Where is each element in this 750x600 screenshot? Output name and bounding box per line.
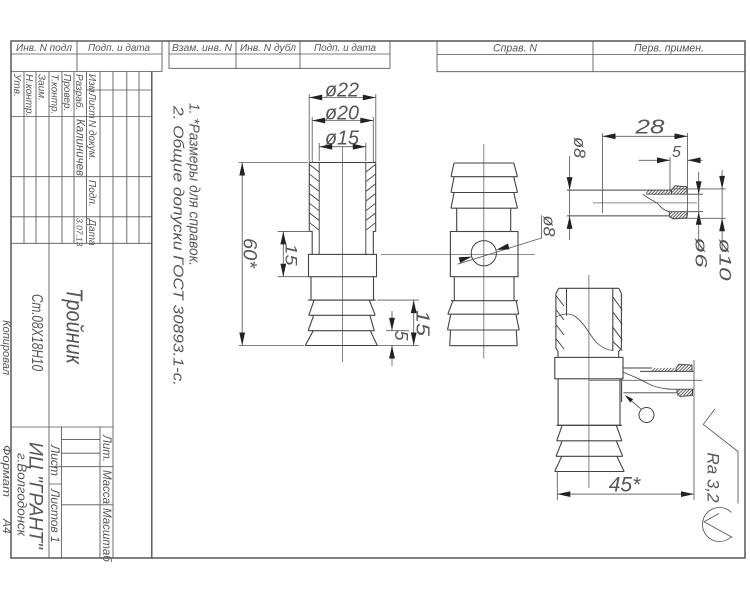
svg-text:2. Общие допуски ГОСТ 30893.1-: 2. Общие допуски ГОСТ 30893.1-с. <box>170 105 186 386</box>
svg-text:Заим.: Заим. <box>36 74 47 101</box>
svg-text:ø6: ø6 <box>692 238 711 269</box>
svg-text:Калиничев: Калиничев <box>74 119 86 176</box>
svg-text:Разраб.: Разраб. <box>73 74 85 110</box>
svg-text:Инв. N дубл: Инв. N дубл <box>240 42 296 54</box>
svg-text:3.07.13: 3.07.13 <box>75 218 85 247</box>
svg-text:Подп. и дата: Подп. и дата <box>88 42 150 54</box>
svg-text:г.Волгодонск: г.Волгодонск <box>15 453 30 537</box>
svg-text:5: 5 <box>391 331 411 342</box>
svg-text:Ст.08Х18Н10: Ст.08Х18Н10 <box>28 294 45 371</box>
svg-text:Утв.: Утв. <box>11 73 22 97</box>
svg-text:Формат: Формат <box>0 445 12 497</box>
svg-text:Лист: Лист <box>48 444 62 476</box>
svg-text:Лист: Лист <box>86 92 97 119</box>
svg-text:Подп. и дата: Подп. и дата <box>314 42 376 54</box>
svg-text:Подп.: Подп. <box>86 180 97 207</box>
svg-text:Т.контр.: Т.контр. <box>49 74 60 114</box>
svg-text:ø8: ø8 <box>540 216 559 238</box>
svg-text:Н.контр.: Н.контр. <box>23 74 34 116</box>
svg-text:ø8: ø8 <box>570 137 589 159</box>
svg-text:ø22: ø22 <box>325 80 359 102</box>
svg-text:ø15: ø15 <box>325 128 360 150</box>
svg-text:1. *Размеры для справок.: 1. *Размеры для справок. <box>186 103 202 266</box>
svg-text:Дата: Дата <box>86 218 97 246</box>
svg-text:А4: А4 <box>0 518 14 534</box>
svg-text:Тройник: Тройник <box>62 288 88 365</box>
svg-text:Масштаб: Масштаб <box>100 508 112 562</box>
svg-text:ø20: ø20 <box>325 103 359 125</box>
svg-text:Перв. примен.: Перв. примен. <box>634 43 704 55</box>
svg-text:Ra 3,2: Ra 3,2 <box>704 453 723 504</box>
svg-text:Лит.: Лит. <box>100 434 112 462</box>
svg-text:60*: 60* <box>239 238 260 269</box>
svg-text:15: 15 <box>282 244 301 267</box>
svg-text:28: 28 <box>634 117 664 139</box>
svg-text:Инв. N подл: Инв. N подл <box>16 42 72 54</box>
svg-text:Справ. N: Справ. N <box>493 43 537 55</box>
svg-text:5: 5 <box>672 144 681 161</box>
svg-text:Взам. инв. N: Взам. инв. N <box>172 42 232 54</box>
svg-text:Провер.: Провер. <box>61 74 72 111</box>
svg-text:N докум.: N докум. <box>86 120 97 160</box>
svg-text:Листов 1: Листов 1 <box>48 488 62 543</box>
svg-text:15: 15 <box>413 310 433 337</box>
svg-text:ø10: ø10 <box>716 239 735 282</box>
svg-text:Масса: Масса <box>100 470 112 504</box>
svg-text:45*: 45* <box>609 474 641 497</box>
svg-text:Копировал: Копировал <box>0 320 12 375</box>
